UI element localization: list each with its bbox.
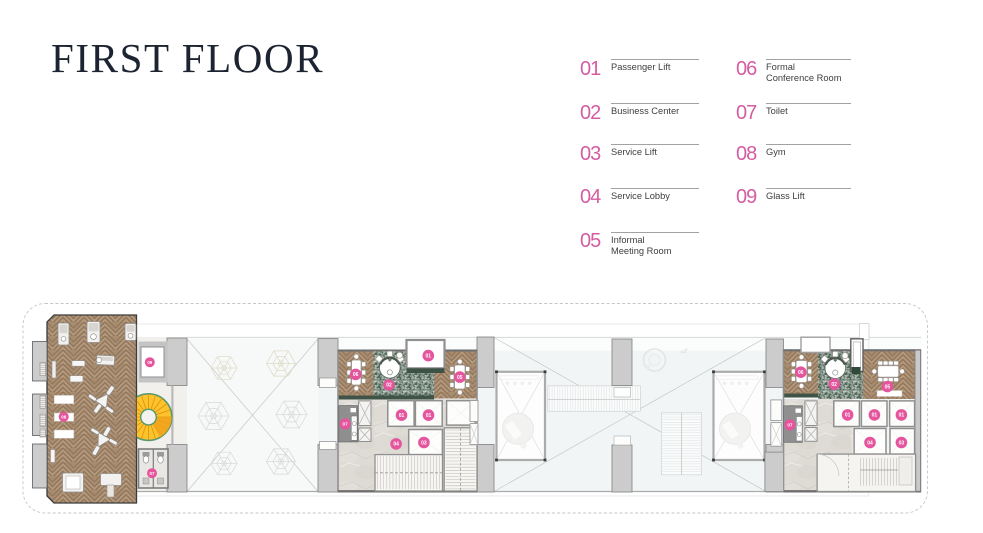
svg-text:07: 07: [787, 423, 793, 428]
svg-text:02: 02: [386, 383, 392, 389]
svg-text:09: 09: [147, 360, 152, 365]
svg-text:05: 05: [885, 384, 891, 390]
svg-text:01: 01: [426, 413, 432, 419]
svg-text:03: 03: [899, 440, 905, 446]
svg-text:04: 04: [867, 440, 873, 446]
svg-text:01: 01: [845, 413, 851, 419]
svg-text:06: 06: [798, 370, 804, 376]
svg-text:01: 01: [899, 413, 905, 419]
svg-text:07: 07: [150, 471, 155, 476]
svg-text:01: 01: [426, 353, 432, 359]
svg-text:01: 01: [399, 413, 405, 419]
svg-text:01: 01: [872, 413, 878, 419]
svg-text:02: 02: [831, 382, 837, 388]
svg-text:04: 04: [393, 442, 399, 448]
svg-text:06: 06: [353, 372, 359, 378]
svg-text:03: 03: [421, 440, 427, 446]
svg-text:08: 08: [61, 414, 66, 419]
svg-text:05: 05: [457, 375, 463, 381]
svg-text:07: 07: [343, 422, 349, 427]
